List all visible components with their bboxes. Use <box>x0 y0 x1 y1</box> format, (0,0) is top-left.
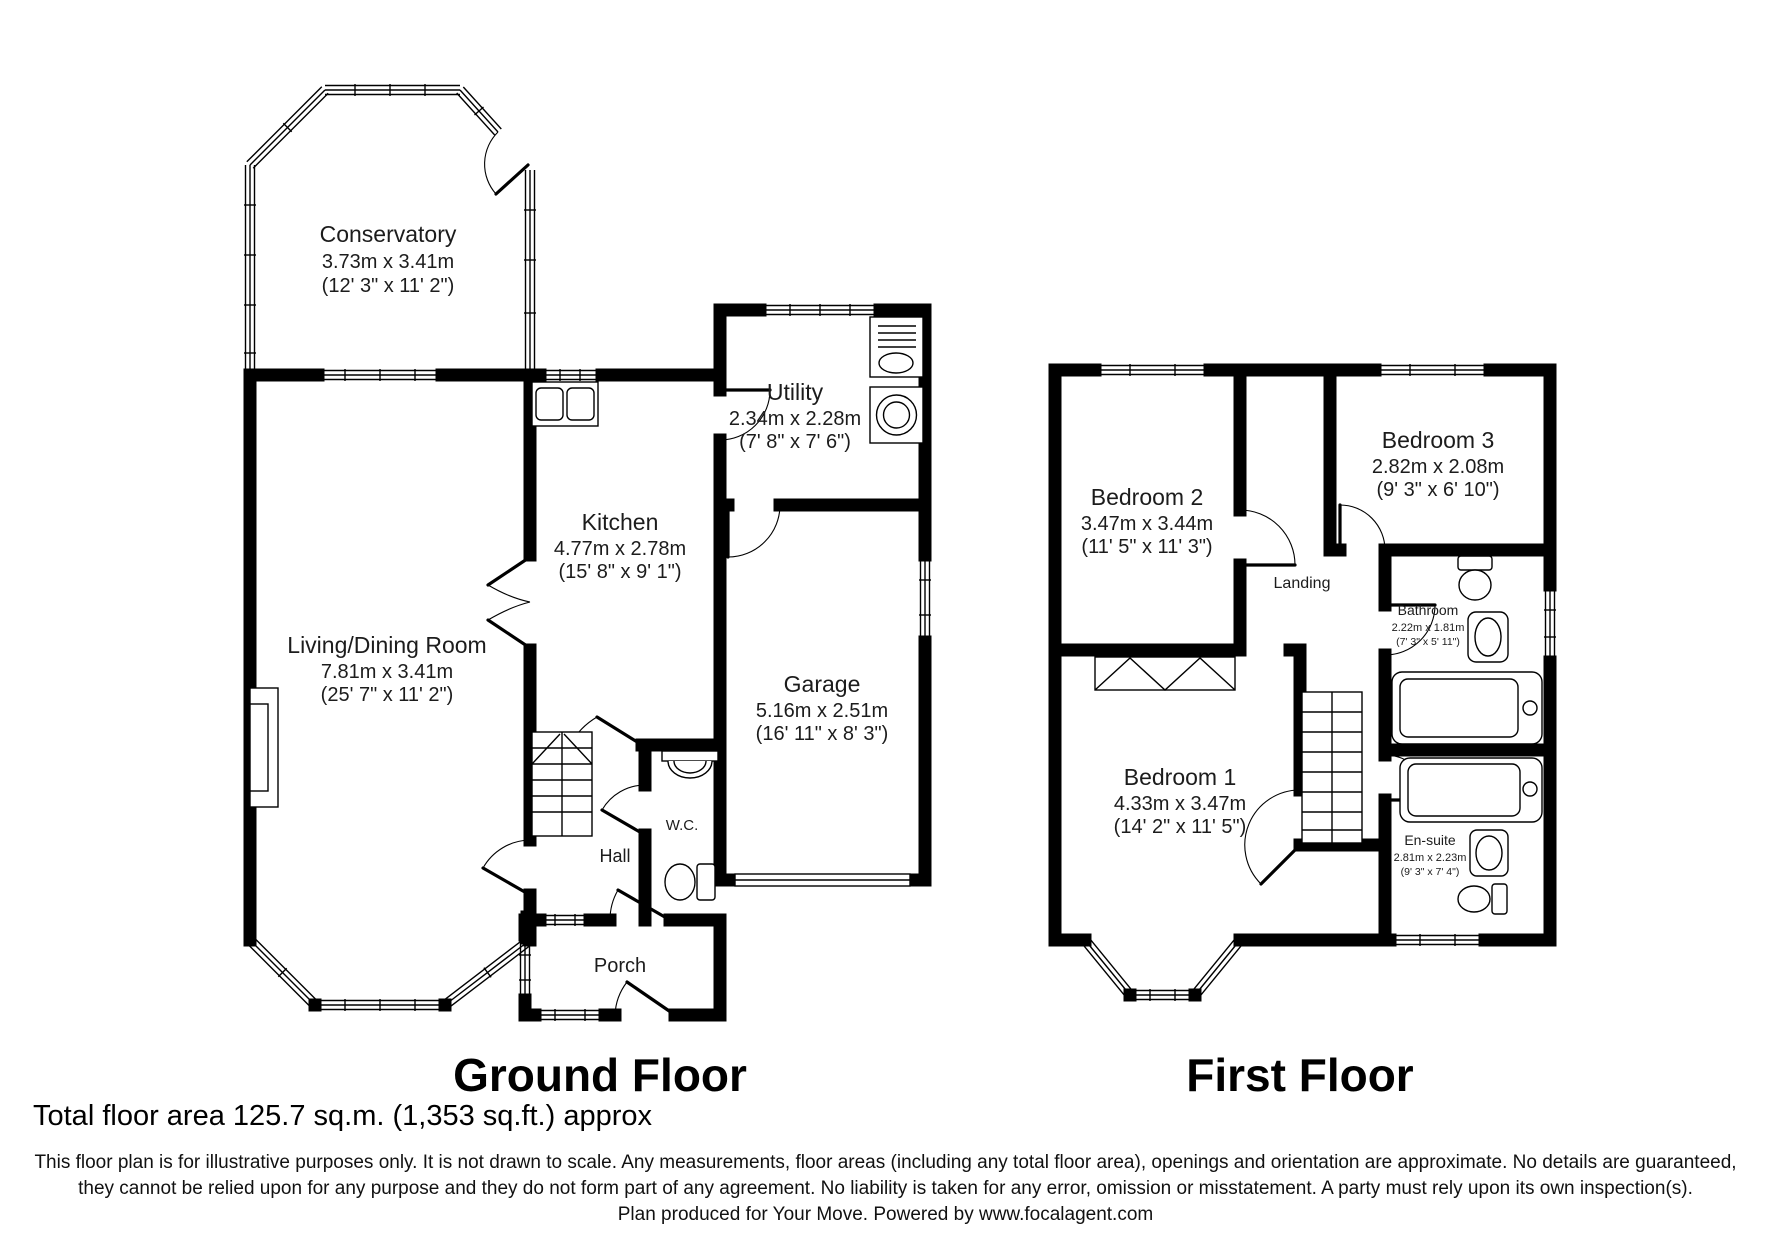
room-label-hall: Hall <box>599 846 630 866</box>
ensuite-bath <box>1400 758 1542 822</box>
garage-door <box>735 874 910 886</box>
room-conservatory: Conservatory 3.73m x 3.41m (12' 3" x 11'… <box>320 221 457 297</box>
disclaimer-line-2: they cannot be relied upon for any purpo… <box>0 1176 1771 1202</box>
room-bedroom1: Bedroom 1 4.33m x 3.47m (14' 2" x 11' 5"… <box>1114 764 1247 838</box>
kitchen-sink <box>532 382 598 426</box>
room-dims-m: 4.33m x 3.47m <box>1114 793 1246 815</box>
room-label: Bathroom <box>1398 602 1459 618</box>
room-dims-m: 2.34m x 2.28m <box>729 408 861 430</box>
room-dims-m: 3.73m x 3.41m <box>322 251 454 273</box>
room-dims-ft: (9' 3" x 7' 4") <box>1401 866 1460 878</box>
bedroom2-window <box>1095 364 1210 376</box>
washing-machine <box>870 387 923 443</box>
room-label: Kitchen <box>582 509 659 535</box>
room-label: Bedroom 3 <box>1382 427 1495 453</box>
hall-front-window <box>540 914 590 926</box>
utility-window <box>760 304 880 316</box>
ensuite-toilet <box>1458 884 1507 914</box>
room-dims-ft: (7' 8" x 7' 6") <box>739 431 851 453</box>
room-label-landing: Landing <box>1274 575 1331 592</box>
room-bedroom2: Bedroom 2 3.47m x 3.44m (11' 5" x 11' 3"… <box>1081 484 1213 558</box>
room-ensuite: En-suite 2.81m x 2.23m (9' 3" x 7' 4") <box>1394 832 1467 878</box>
bedroom1-bay-window <box>1079 934 1247 1002</box>
room-bedroom3: Bedroom 3 2.82m x 2.08m (9' 3" x 6' 10") <box>1372 427 1504 501</box>
living-top-window <box>318 369 442 381</box>
room-dims-m: 2.82m x 2.08m <box>1372 456 1504 478</box>
disclaimer-text: This floor plan is for illustrative purp… <box>0 1150 1771 1228</box>
first-floor-title: First Floor <box>1186 1048 1413 1102</box>
garage-side-window <box>919 555 931 642</box>
room-dims-ft: (7' 3" x 5' 11") <box>1396 636 1460 648</box>
kitchen-window <box>540 369 602 381</box>
room-dims-m: 2.81m x 2.23m <box>1394 852 1467 864</box>
room-dims-ft: (9' 3" x 6' 10") <box>1377 479 1500 501</box>
bathroom-window <box>1544 585 1556 662</box>
room-dims-ft: (11' 5" x 11' 3") <box>1081 536 1212 558</box>
living-bay-window <box>244 702 537 1011</box>
staircase <box>532 732 592 836</box>
fireplace <box>250 688 278 807</box>
room-dims-m: 5.16m x 2.51m <box>756 700 888 722</box>
disclaimer-line-3: Plan produced for Your Move. Powered by … <box>0 1202 1771 1228</box>
room-label-porch: Porch <box>594 955 646 977</box>
bathroom-basin <box>1468 612 1508 662</box>
bathroom-toilet <box>1458 556 1492 600</box>
room-label: Garage <box>784 671 861 697</box>
bedroom1-door <box>1245 790 1300 884</box>
room-label: Utility <box>767 379 824 405</box>
room-dims-ft: (16' 11" x 8' 3") <box>756 723 889 745</box>
wardrobe <box>1095 657 1235 690</box>
room-kitchen: Kitchen 4.77m x 2.78m (15' 8" x 9' 1") <box>554 509 686 583</box>
bedroom2-door <box>1240 510 1295 565</box>
disclaimer-line-1: This floor plan is for illustrative purp… <box>0 1150 1771 1176</box>
bedroom3-door <box>1340 505 1385 550</box>
room-label: Conservatory <box>320 221 457 247</box>
room-dims-m: 4.77m x 2.78m <box>554 538 686 560</box>
room-dims-m: 7.81m x 3.41m <box>321 661 453 683</box>
utility-garage-door <box>728 505 780 557</box>
room-label: Bedroom 1 <box>1124 764 1237 790</box>
room-label: En-suite <box>1404 832 1456 848</box>
porch-windows <box>519 935 605 1021</box>
ground-floor-plan: Conservatory 3.73m x 3.41m (12' 3" x 11'… <box>230 70 950 1060</box>
room-label: Living/Dining Room <box>287 632 486 658</box>
living-kitchen-double-door <box>488 557 530 648</box>
room-dims-ft: (14' 2" x 11' 5") <box>1114 816 1247 838</box>
ensuite-window <box>1390 934 1485 946</box>
first-floor-plan: Bedroom 2 3.47m x 3.44m (11' 5" x 11' 3"… <box>1040 360 1560 1020</box>
living-hall-door <box>483 840 530 895</box>
room-dims-ft: (15' 8" x 9' 1") <box>559 561 682 583</box>
room-label: Bedroom 2 <box>1091 484 1204 510</box>
utility-sink <box>870 317 923 377</box>
bathroom-bath <box>1392 672 1542 744</box>
staircase-first <box>1302 692 1362 843</box>
room-dims-m: 2.22m x 1.81m <box>1392 622 1465 634</box>
wc-door <box>602 785 645 835</box>
room-garage: Garage 5.16m x 2.51m (16' 11" x 8' 3") <box>756 671 889 745</box>
conservatory-door <box>485 132 528 194</box>
room-dims-ft: (25' 7" x 11' 2") <box>321 684 454 706</box>
floor-plan-page: Conservatory 3.73m x 3.41m (12' 3" x 11'… <box>0 0 1771 1240</box>
bedroom3-window <box>1375 364 1490 376</box>
ensuite-basin <box>1470 830 1508 876</box>
total-area-text: Total floor area 125.7 sq.m. (1,353 sq.f… <box>33 1100 652 1133</box>
wc-basin <box>662 751 718 778</box>
room-dims-m: 3.47m x 3.44m <box>1081 513 1213 535</box>
room-label-wc: W.C. <box>666 817 699 834</box>
room-living-dining: Living/Dining Room 7.81m x 3.41m (25' 7"… <box>287 632 486 706</box>
wc-toilet <box>665 864 715 900</box>
room-dims-ft: (12' 3" x 11' 2") <box>322 275 455 297</box>
room-bathroom: Bathroom 2.22m x 1.81m (7' 3" x 5' 11") <box>1392 602 1465 648</box>
porch-door <box>615 982 675 1015</box>
ground-floor-title: Ground Floor <box>453 1048 747 1102</box>
